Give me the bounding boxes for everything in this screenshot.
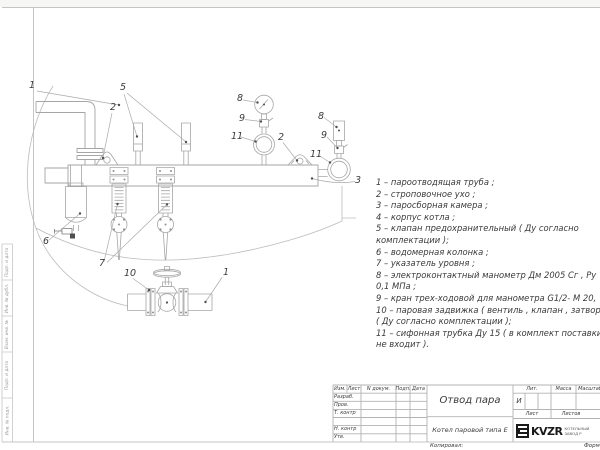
legend-line: комплектации ); [376,235,600,247]
legend-line: не входит ). [376,339,600,351]
copied-label: Копировал: [430,443,463,449]
legend-line: 8 – электроконтактный манометр Дм 2005 С… [376,270,600,282]
callout-label: 11 [231,131,243,142]
legend-line: 2 – строповочное ухо ; [376,189,600,201]
mass-header: Масса [551,385,576,393]
callout-label: 2 [278,132,284,143]
format-label: Формат [584,443,600,449]
scale-header: Масштаб [576,385,600,393]
margin-cell-label: Инв. № подл. [5,405,10,435]
lifting-eye-left [96,152,118,165]
lit-value: И [513,393,525,409]
legend-line: 5 – клапан предохранительный ( Ду соглас… [376,223,600,235]
margin-cell: Взам. инв. № [2,316,13,352]
callout-label: 6 [43,236,49,247]
logo-caption-line2: ЗАВОД Р [564,431,589,436]
water-gauge-column [55,165,87,239]
legend-line: 3 – паросборная камера ; [376,200,600,212]
tb-col-header: N докум. [361,385,396,393]
legend-line: 4 – корпус котла ; [376,212,600,224]
callout-label: 7 [99,258,105,269]
lit-header: Лит. [513,385,551,393]
margin-cell: Подп. и дата [2,352,13,398]
tb-row-label: Утв. [334,434,361,442]
callout-label: 5 [120,82,126,93]
margin-cell-label: Подп. и дата [5,247,10,276]
callout-label: 1 [223,267,229,278]
callout-label: 10 [124,268,136,279]
callout-label: 11 [310,149,322,160]
tb-col-header: Лист [347,385,361,393]
callout-label: 1 [29,80,35,91]
level-indicator-right [157,168,175,261]
legend-line: 0,1 МПа ; [376,281,600,293]
logo-text: KVZR [531,425,562,438]
callout-label: 3 [355,175,361,186]
sheets-label: Листов [551,410,591,419]
tb-row-label [334,418,361,426]
boiler-shell-outline [27,86,356,306]
drawing-subtitle: Котел паровой типа Е [427,417,513,442]
sheet-label: Лист [513,410,551,419]
legend-line: 10 – паровая задвижка ( вентиль , клапан… [376,305,600,317]
tb-row-label: Т. контр [334,410,361,418]
legend-line: 7 – указатель уровня ; [376,258,600,270]
tb-row-label: Разраб. [334,394,361,402]
steam-outlet-pipe [36,102,103,166]
three-way-cock-icon [335,146,344,154]
tb-col-header: Изм. [333,385,347,393]
safety-valve-right [182,123,191,165]
manufacturer-logo: KVZR КОТЕЛЬНЫЙ ЗАВОД Р [516,421,600,441]
callout-label: 9 [321,130,327,141]
callout-label: 9 [239,113,245,124]
tb-row-label: Н. контр [334,426,361,434]
tb-row-label: Пров. [334,402,361,410]
pressure-gauge-assembly-left [254,95,275,165]
margin-cell-label: Инв. № дубл. [5,283,10,312]
margin-cell: Инв. № дубл. [2,280,13,316]
level-indicator-left [110,168,128,261]
tb-col-header: Дата [410,385,427,393]
drawing-sheet: 152891128911367101 1 – пароотводящая тру… [0,0,600,450]
legend-line: 1 – пароотводящая труба ; [376,177,600,189]
kvzr-logo-icon [516,424,529,438]
callout-labels: 152891128911367101 [29,80,361,279]
margin-cell-label: Взам. инв. № [5,319,10,348]
legend: 1 – пароотводящая труба ;2 – строповочно… [376,177,600,351]
lifting-eye-right [288,155,312,165]
drawing-title: Отвод пара [427,385,513,416]
callout-label: 8 [237,93,243,104]
logo-caption: КОТЕЛЬНЫЙ ЗАВОД Р [564,426,589,436]
leader-dots [79,101,339,303]
margin-cell-label: Подп. и дата [5,360,10,389]
legend-line: 11 – сифонная трубка Ду 15 ( в комплект … [376,328,600,340]
margin-cell: Инв. № подл. [2,398,13,442]
steam-drum [45,165,318,186]
tb-col-header: Подп. [396,385,410,393]
legend-line: ( Ду согласно комплектации ); [376,316,600,328]
legend-line: 6 – водомерная колонка ; [376,247,600,259]
callout-label: 2 [110,102,116,113]
margin-cell: Подп. и дата [2,244,13,280]
legend-line: 9 – кран трех-ходовой для манометра G1/2… [376,293,600,305]
siphon-tube-icon [254,134,275,155]
steam-gate-valve [128,267,213,316]
callout-label: 8 [318,111,324,122]
